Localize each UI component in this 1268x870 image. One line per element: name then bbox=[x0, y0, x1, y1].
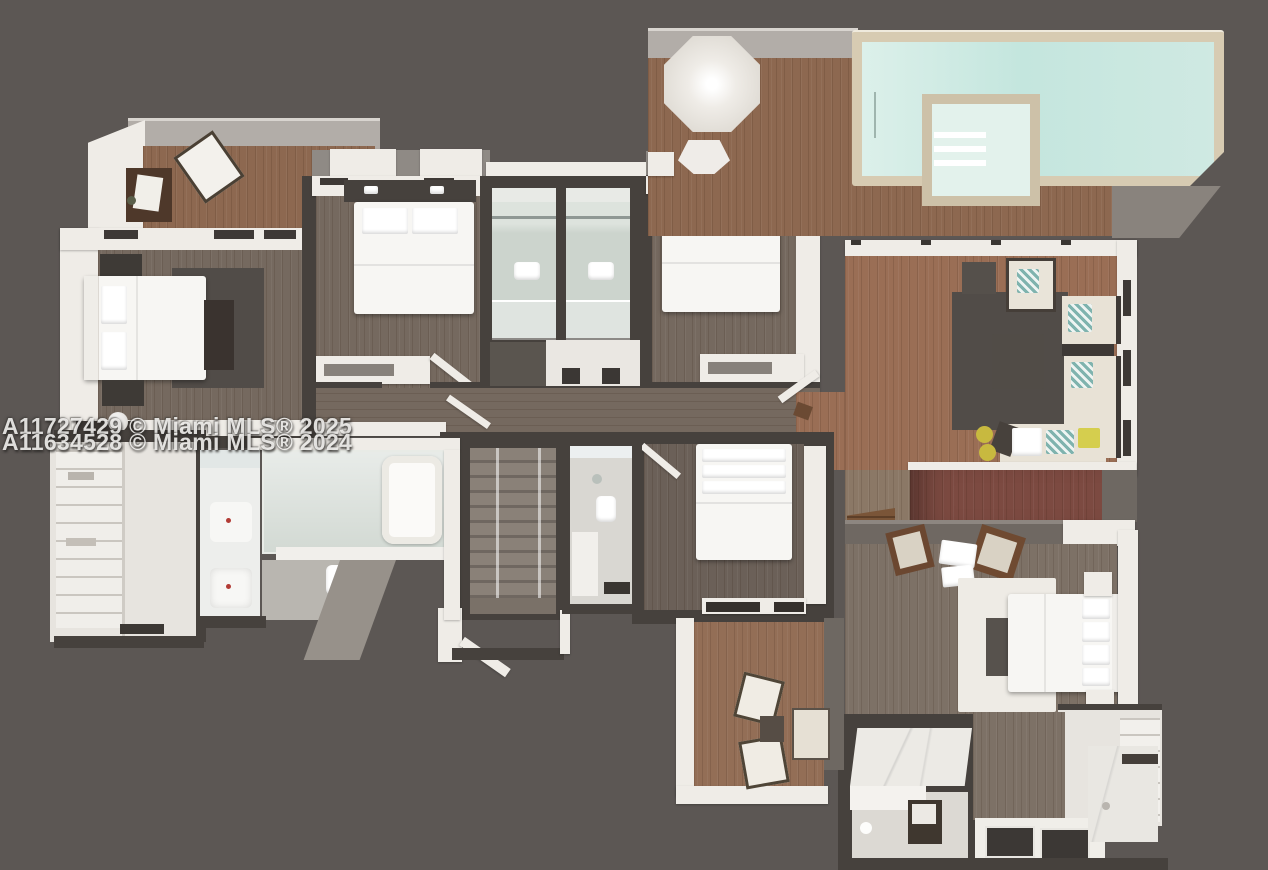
bedroom1-right-wall bbox=[302, 228, 316, 440]
closet-bottom-wall bbox=[54, 636, 204, 648]
stair-bottom-dark bbox=[452, 648, 564, 660]
shower-bar bbox=[492, 216, 556, 219]
sofa-pillow bbox=[1078, 428, 1100, 448]
glass-door bbox=[566, 300, 630, 340]
bedroom1-nightstand bbox=[102, 380, 144, 406]
walkin-closet bbox=[50, 442, 198, 642]
pillow bbox=[101, 286, 127, 324]
window-mullions bbox=[851, 240, 1131, 245]
glass-railing bbox=[496, 448, 499, 598]
swimming-pool bbox=[852, 30, 1224, 186]
bedroom1-bed bbox=[84, 276, 206, 380]
spa-bench bbox=[934, 132, 986, 174]
vanity-leg bbox=[602, 368, 620, 384]
terrace-chair-2 bbox=[133, 174, 163, 211]
floor-mat bbox=[774, 602, 804, 612]
armchair-pillow bbox=[1017, 269, 1039, 293]
toilet bbox=[860, 822, 872, 834]
shower-bar bbox=[566, 216, 630, 219]
primary-bed bbox=[1008, 594, 1120, 692]
pillow bbox=[1082, 645, 1110, 665]
vanity-floor bbox=[490, 342, 546, 386]
chair-cushion bbox=[977, 533, 1017, 573]
window-sill bbox=[1123, 350, 1131, 386]
bedroom4-bed bbox=[696, 444, 792, 560]
vanity-sink bbox=[1040, 828, 1090, 860]
closet-wall-line bbox=[122, 442, 125, 642]
sink-console bbox=[572, 532, 598, 596]
sofa-pillow bbox=[1068, 304, 1092, 332]
mirror-band bbox=[570, 446, 632, 458]
watermark-line2: A11634528 © Miami MLS® 2024 bbox=[2, 431, 352, 454]
livingroom-top-wall bbox=[845, 240, 1137, 256]
side-table bbox=[962, 262, 996, 294]
window-sill bbox=[214, 230, 254, 239]
planter-box bbox=[420, 149, 482, 176]
vanity-counter bbox=[546, 340, 640, 386]
window-sill bbox=[1123, 280, 1131, 316]
stair-landing bbox=[470, 598, 556, 614]
coffee-table bbox=[992, 334, 1044, 389]
balcony-bottom-wall bbox=[676, 786, 828, 804]
stair-shell bbox=[450, 432, 566, 620]
duvet-fold bbox=[696, 502, 792, 504]
clothes bbox=[68, 472, 94, 480]
counter-edge bbox=[276, 547, 444, 560]
window-sill bbox=[104, 230, 138, 239]
duvet-fold bbox=[354, 264, 474, 266]
vanity-sink bbox=[985, 826, 1035, 858]
bathtub bbox=[382, 456, 442, 544]
pillow bbox=[1082, 622, 1110, 642]
accent-wall bbox=[910, 470, 1102, 522]
sink bbox=[210, 502, 252, 542]
spa bbox=[922, 94, 1040, 206]
terrace-side-table bbox=[126, 168, 172, 222]
console-top bbox=[324, 364, 394, 376]
toilet bbox=[514, 262, 540, 280]
primary-right-wall bbox=[1118, 530, 1138, 716]
sofa-console bbox=[1062, 344, 1114, 356]
bathrooms-block bbox=[480, 176, 646, 390]
tub-bath-bottom-wall bbox=[196, 616, 266, 628]
soap-icon bbox=[226, 518, 231, 523]
glass-railing bbox=[538, 448, 541, 598]
small-bath-shell bbox=[562, 436, 642, 614]
floor-mat bbox=[604, 582, 630, 594]
pillow bbox=[1082, 599, 1110, 619]
deck-planter bbox=[648, 152, 674, 176]
bedroom2-console bbox=[316, 356, 430, 384]
pillow bbox=[1082, 668, 1110, 686]
primary-floor-strip bbox=[973, 712, 1065, 820]
sofa-pillow bbox=[1071, 362, 1093, 388]
balcony-table bbox=[760, 716, 784, 742]
pillow bbox=[702, 481, 786, 494]
sink bbox=[210, 568, 252, 608]
marble-counter bbox=[850, 728, 972, 786]
ottoman bbox=[979, 444, 996, 461]
light-fixture-icon bbox=[592, 474, 602, 484]
bathroom-b-shelf bbox=[566, 188, 630, 202]
duvet-fold bbox=[136, 276, 138, 380]
window-sill bbox=[1123, 420, 1131, 456]
sofa-chaise bbox=[1062, 296, 1121, 344]
shelf-decor bbox=[430, 186, 444, 194]
balcony-left-wall bbox=[676, 618, 694, 796]
plant-icon bbox=[127, 196, 136, 205]
sofa-pillow bbox=[1012, 428, 1042, 456]
ottoman bbox=[976, 426, 993, 443]
pool-deck-lower bbox=[648, 186, 1112, 236]
wc-marble-top bbox=[912, 804, 936, 824]
pool-ladder-icon bbox=[874, 92, 876, 138]
soap-icon bbox=[226, 584, 231, 589]
glass-door bbox=[492, 300, 556, 340]
primary-bath-walls bbox=[838, 714, 978, 866]
bedroom2-headboard-shelf bbox=[344, 180, 476, 202]
window-sill bbox=[264, 230, 296, 239]
pillow bbox=[412, 208, 458, 234]
duvet-fold bbox=[1044, 594, 1046, 692]
wc-cabinet bbox=[908, 800, 942, 844]
void-gray bbox=[1102, 470, 1137, 522]
floor-plan-image: A11727429 © Miami MLS® 2025 A11634528 © … bbox=[0, 0, 1268, 870]
clothes bbox=[66, 538, 96, 546]
floor-mat bbox=[120, 624, 164, 634]
nightstand bbox=[1084, 572, 1112, 596]
stair-steps bbox=[470, 448, 556, 598]
bedroom4-shell bbox=[632, 432, 834, 624]
duvet-fold bbox=[662, 262, 780, 264]
toilet bbox=[596, 496, 616, 522]
bathroom-a-shelf bbox=[492, 188, 556, 202]
vanity-column bbox=[200, 450, 260, 620]
headboard bbox=[84, 276, 99, 380]
armchair bbox=[1006, 258, 1056, 312]
bath-bottom-wall bbox=[838, 858, 1168, 870]
console-top bbox=[708, 362, 772, 374]
pillow bbox=[101, 332, 127, 370]
floor-mat bbox=[706, 602, 760, 612]
bedroom3-console bbox=[700, 354, 804, 384]
pillow bbox=[702, 449, 786, 462]
tub-bath-right-wall bbox=[444, 450, 460, 620]
toilet bbox=[588, 262, 614, 280]
pillow bbox=[702, 465, 786, 478]
planter-box bbox=[330, 149, 396, 176]
vanity-leg bbox=[562, 368, 580, 384]
bedroom2-bed bbox=[354, 202, 474, 314]
balcony-bench bbox=[792, 708, 830, 760]
shelf-decor bbox=[364, 186, 378, 194]
stair-wall-piece bbox=[560, 610, 570, 654]
bedroom4-right-wall bbox=[804, 446, 826, 604]
chair-cushion bbox=[893, 531, 928, 569]
umbrella-icon bbox=[664, 36, 760, 132]
shower bbox=[1088, 746, 1158, 842]
deck-right-corner bbox=[1112, 182, 1224, 238]
sofa-pillow bbox=[1046, 430, 1074, 454]
shower-wall bbox=[1122, 754, 1158, 764]
balcony-chair bbox=[738, 735, 790, 790]
shower-drain-icon bbox=[1102, 802, 1110, 810]
tub-bathroom bbox=[200, 450, 460, 620]
pillow bbox=[362, 208, 408, 234]
bedroom1-bench bbox=[204, 300, 234, 370]
